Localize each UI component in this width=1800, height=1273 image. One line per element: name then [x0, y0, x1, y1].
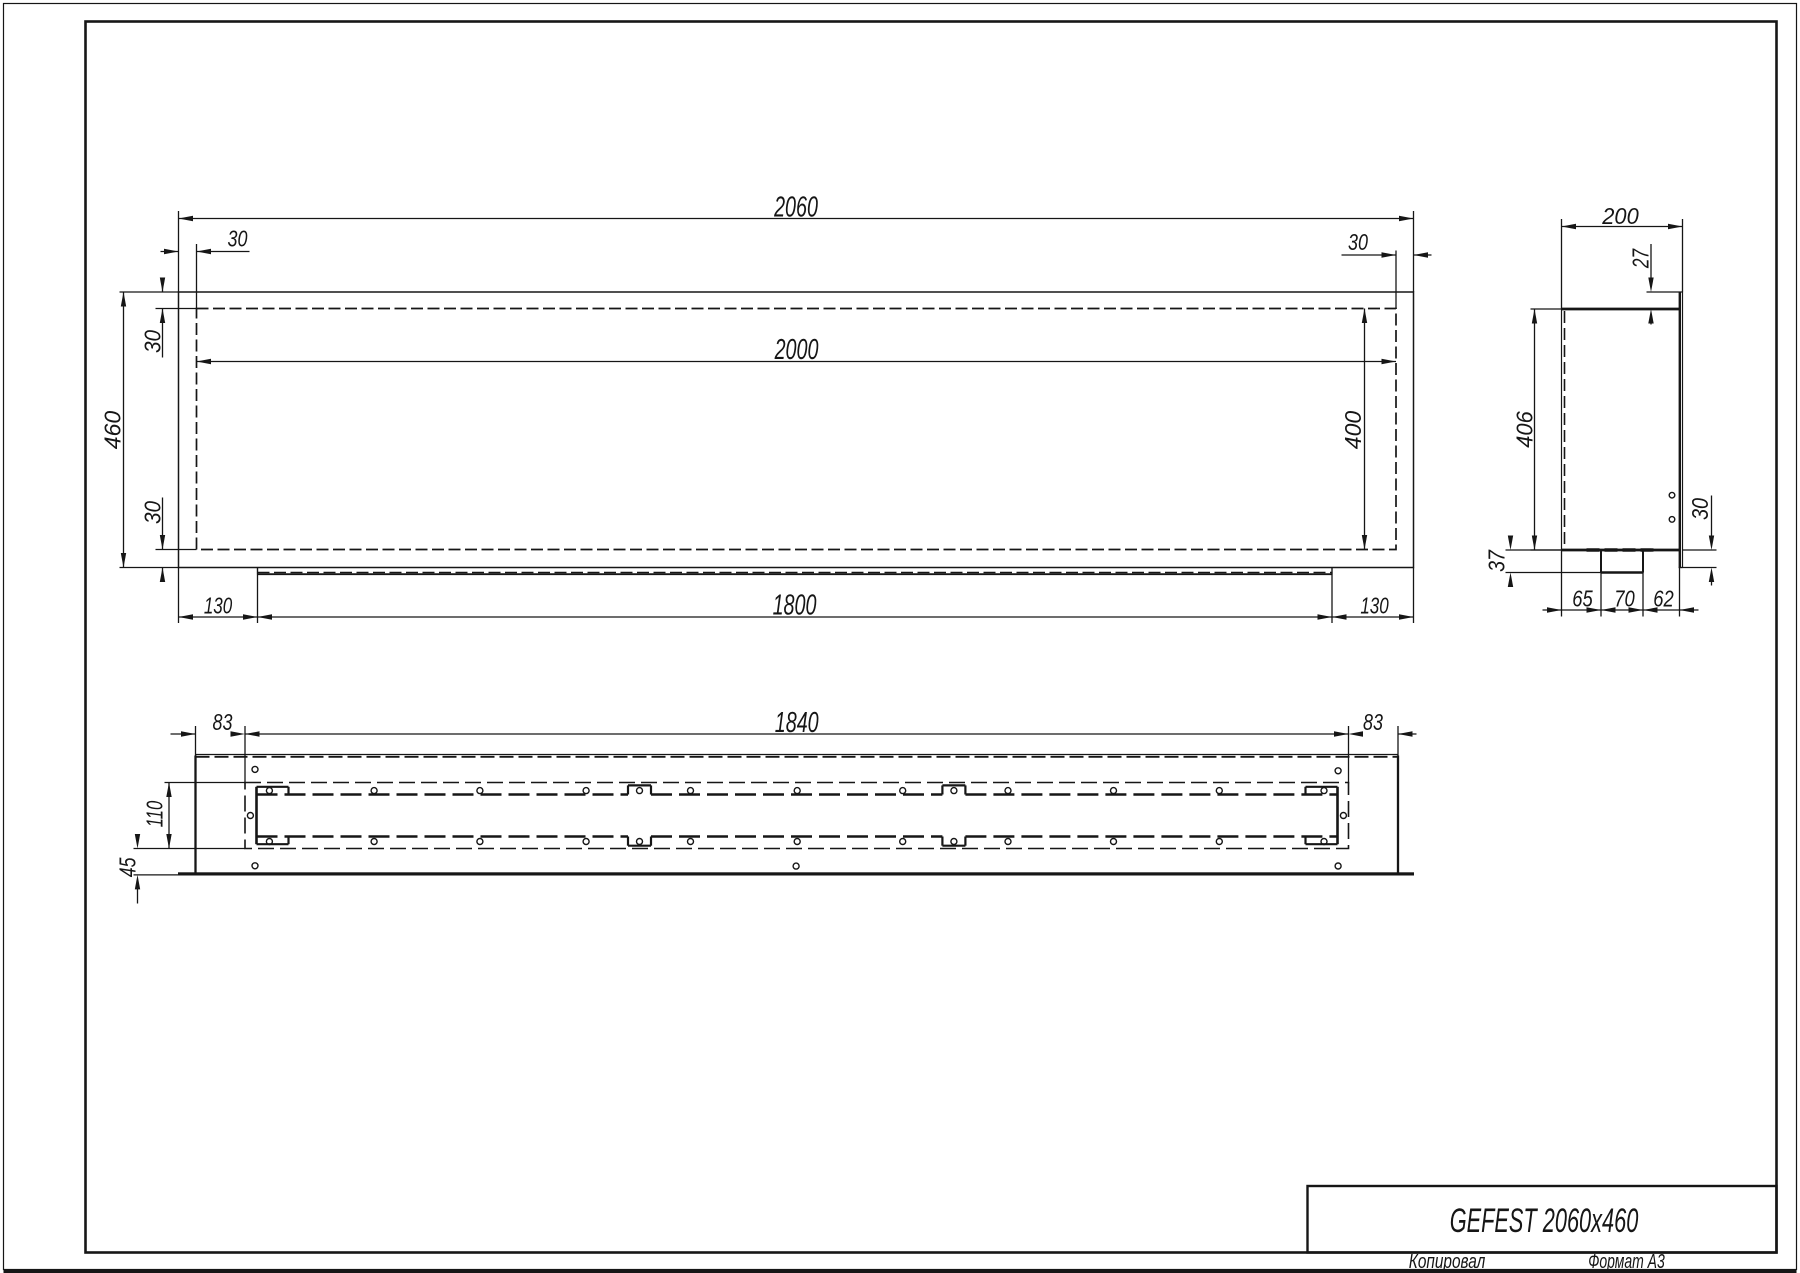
svg-text:1840: 1840	[775, 707, 819, 739]
svg-text:83: 83	[1363, 710, 1383, 736]
svg-text:62: 62	[1653, 587, 1674, 612]
svg-text:45: 45	[115, 857, 141, 877]
svg-text:GEFEST 2060x460: GEFEST 2060x460	[1450, 1202, 1639, 1240]
svg-text:70: 70	[1614, 587, 1635, 612]
svg-text:30: 30	[139, 501, 165, 524]
svg-text:2000: 2000	[774, 334, 819, 366]
svg-text:200: 200	[1601, 203, 1639, 229]
svg-text:65: 65	[1572, 587, 1593, 612]
svg-text:83: 83	[213, 710, 233, 736]
svg-text:2060: 2060	[773, 192, 818, 224]
svg-text:1800: 1800	[773, 590, 817, 622]
svg-text:110: 110	[143, 801, 168, 827]
svg-text:460: 460	[100, 411, 126, 450]
svg-text:130: 130	[204, 594, 233, 619]
svg-text:400: 400	[1340, 411, 1366, 450]
svg-text:130: 130	[1360, 594, 1389, 619]
svg-text:30: 30	[1688, 498, 1714, 520]
svg-text:30: 30	[228, 226, 248, 252]
svg-text:Формат А3: Формат А3	[1588, 1249, 1665, 1272]
svg-text:30: 30	[1348, 230, 1368, 256]
svg-text:Копировал: Копировал	[1409, 1250, 1486, 1272]
svg-text:406: 406	[1512, 411, 1538, 448]
svg-text:37: 37	[1484, 549, 1510, 572]
svg-text:27: 27	[1629, 248, 1654, 269]
svg-text:30: 30	[139, 330, 165, 353]
